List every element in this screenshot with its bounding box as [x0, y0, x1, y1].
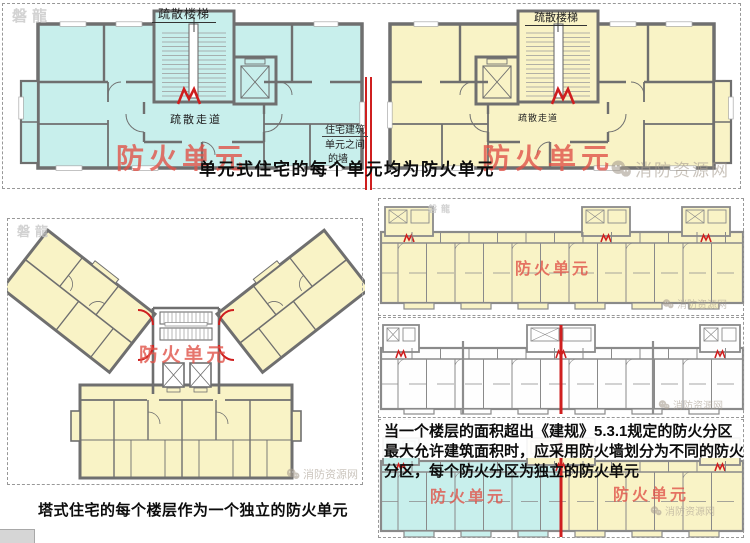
site-watermark-text: 消防资源网 — [665, 503, 715, 518]
site-watermark: 消防资源网 — [286, 466, 358, 482]
site-watermark: 消防资源网 — [658, 397, 723, 412]
left-compartment-fire-unit-label: 防火单元 — [430, 483, 506, 507]
wechat-icon — [662, 299, 674, 309]
wall-label-line2: 单元之间 — [322, 136, 368, 151]
left-plan-stair-label: 疏散楼梯 — [152, 5, 216, 23]
top-caption: 单元式住宅的每个单元均为防火单元 — [199, 155, 495, 180]
tower-caption: 塔式住宅的每个楼层作为一个独立的防火单元 — [38, 499, 348, 520]
left-plan-corridor-label: 疏散走道 — [170, 111, 222, 127]
site-watermark-text: 消防资源网 — [635, 156, 730, 181]
tower-fire-unit-label: 防火单元 — [139, 340, 229, 367]
logo-watermark: 磐龍 — [428, 202, 454, 215]
wechat-icon — [650, 506, 662, 516]
site-watermark-text: 消防资源网 — [677, 296, 727, 311]
regulation-text-line2: 最大允许建筑面积时，应采用防火墙划分为不同的防火 — [384, 440, 744, 461]
site-watermark-text: 消防资源网 — [673, 397, 723, 412]
wechat-icon — [610, 160, 632, 178]
regulation-text-line1: 当一个楼层的面积超出《建规》5.3.1规定的防火分区 — [384, 420, 732, 441]
slab-fire-unit-label: 防火单元 — [515, 255, 591, 279]
right-plan-fire-unit-label: 防火单元 — [482, 137, 614, 177]
wechat-icon — [658, 400, 670, 410]
right-plan-corridor-label: 疏散走道 — [518, 111, 558, 124]
wechat-icon — [286, 468, 300, 480]
fire-unit-diagram-page: { "colors": { "cyan": "#c8efec", "yellow… — [0, 0, 750, 542]
page-corner-fragment — [0, 529, 35, 543]
logo-watermark: 磐龍 — [17, 221, 53, 240]
logo-watermark: 磐龍 — [12, 5, 52, 26]
wall-label-line1: 住宅建筑 — [322, 121, 368, 137]
site-watermark-text: 消防资源网 — [303, 466, 358, 482]
site-watermark: 消防资源网 — [610, 156, 730, 181]
right-compartment-fire-unit-label: 防火单元 — [613, 481, 689, 505]
regulation-text-line3: 分区，每个防火分区为独立的防火单元 — [384, 460, 639, 481]
right-plan-stair-label: 疏散楼梯 — [525, 9, 587, 26]
site-watermark: 消防资源网 — [662, 296, 727, 311]
site-watermark: 消防资源网 — [650, 503, 715, 518]
